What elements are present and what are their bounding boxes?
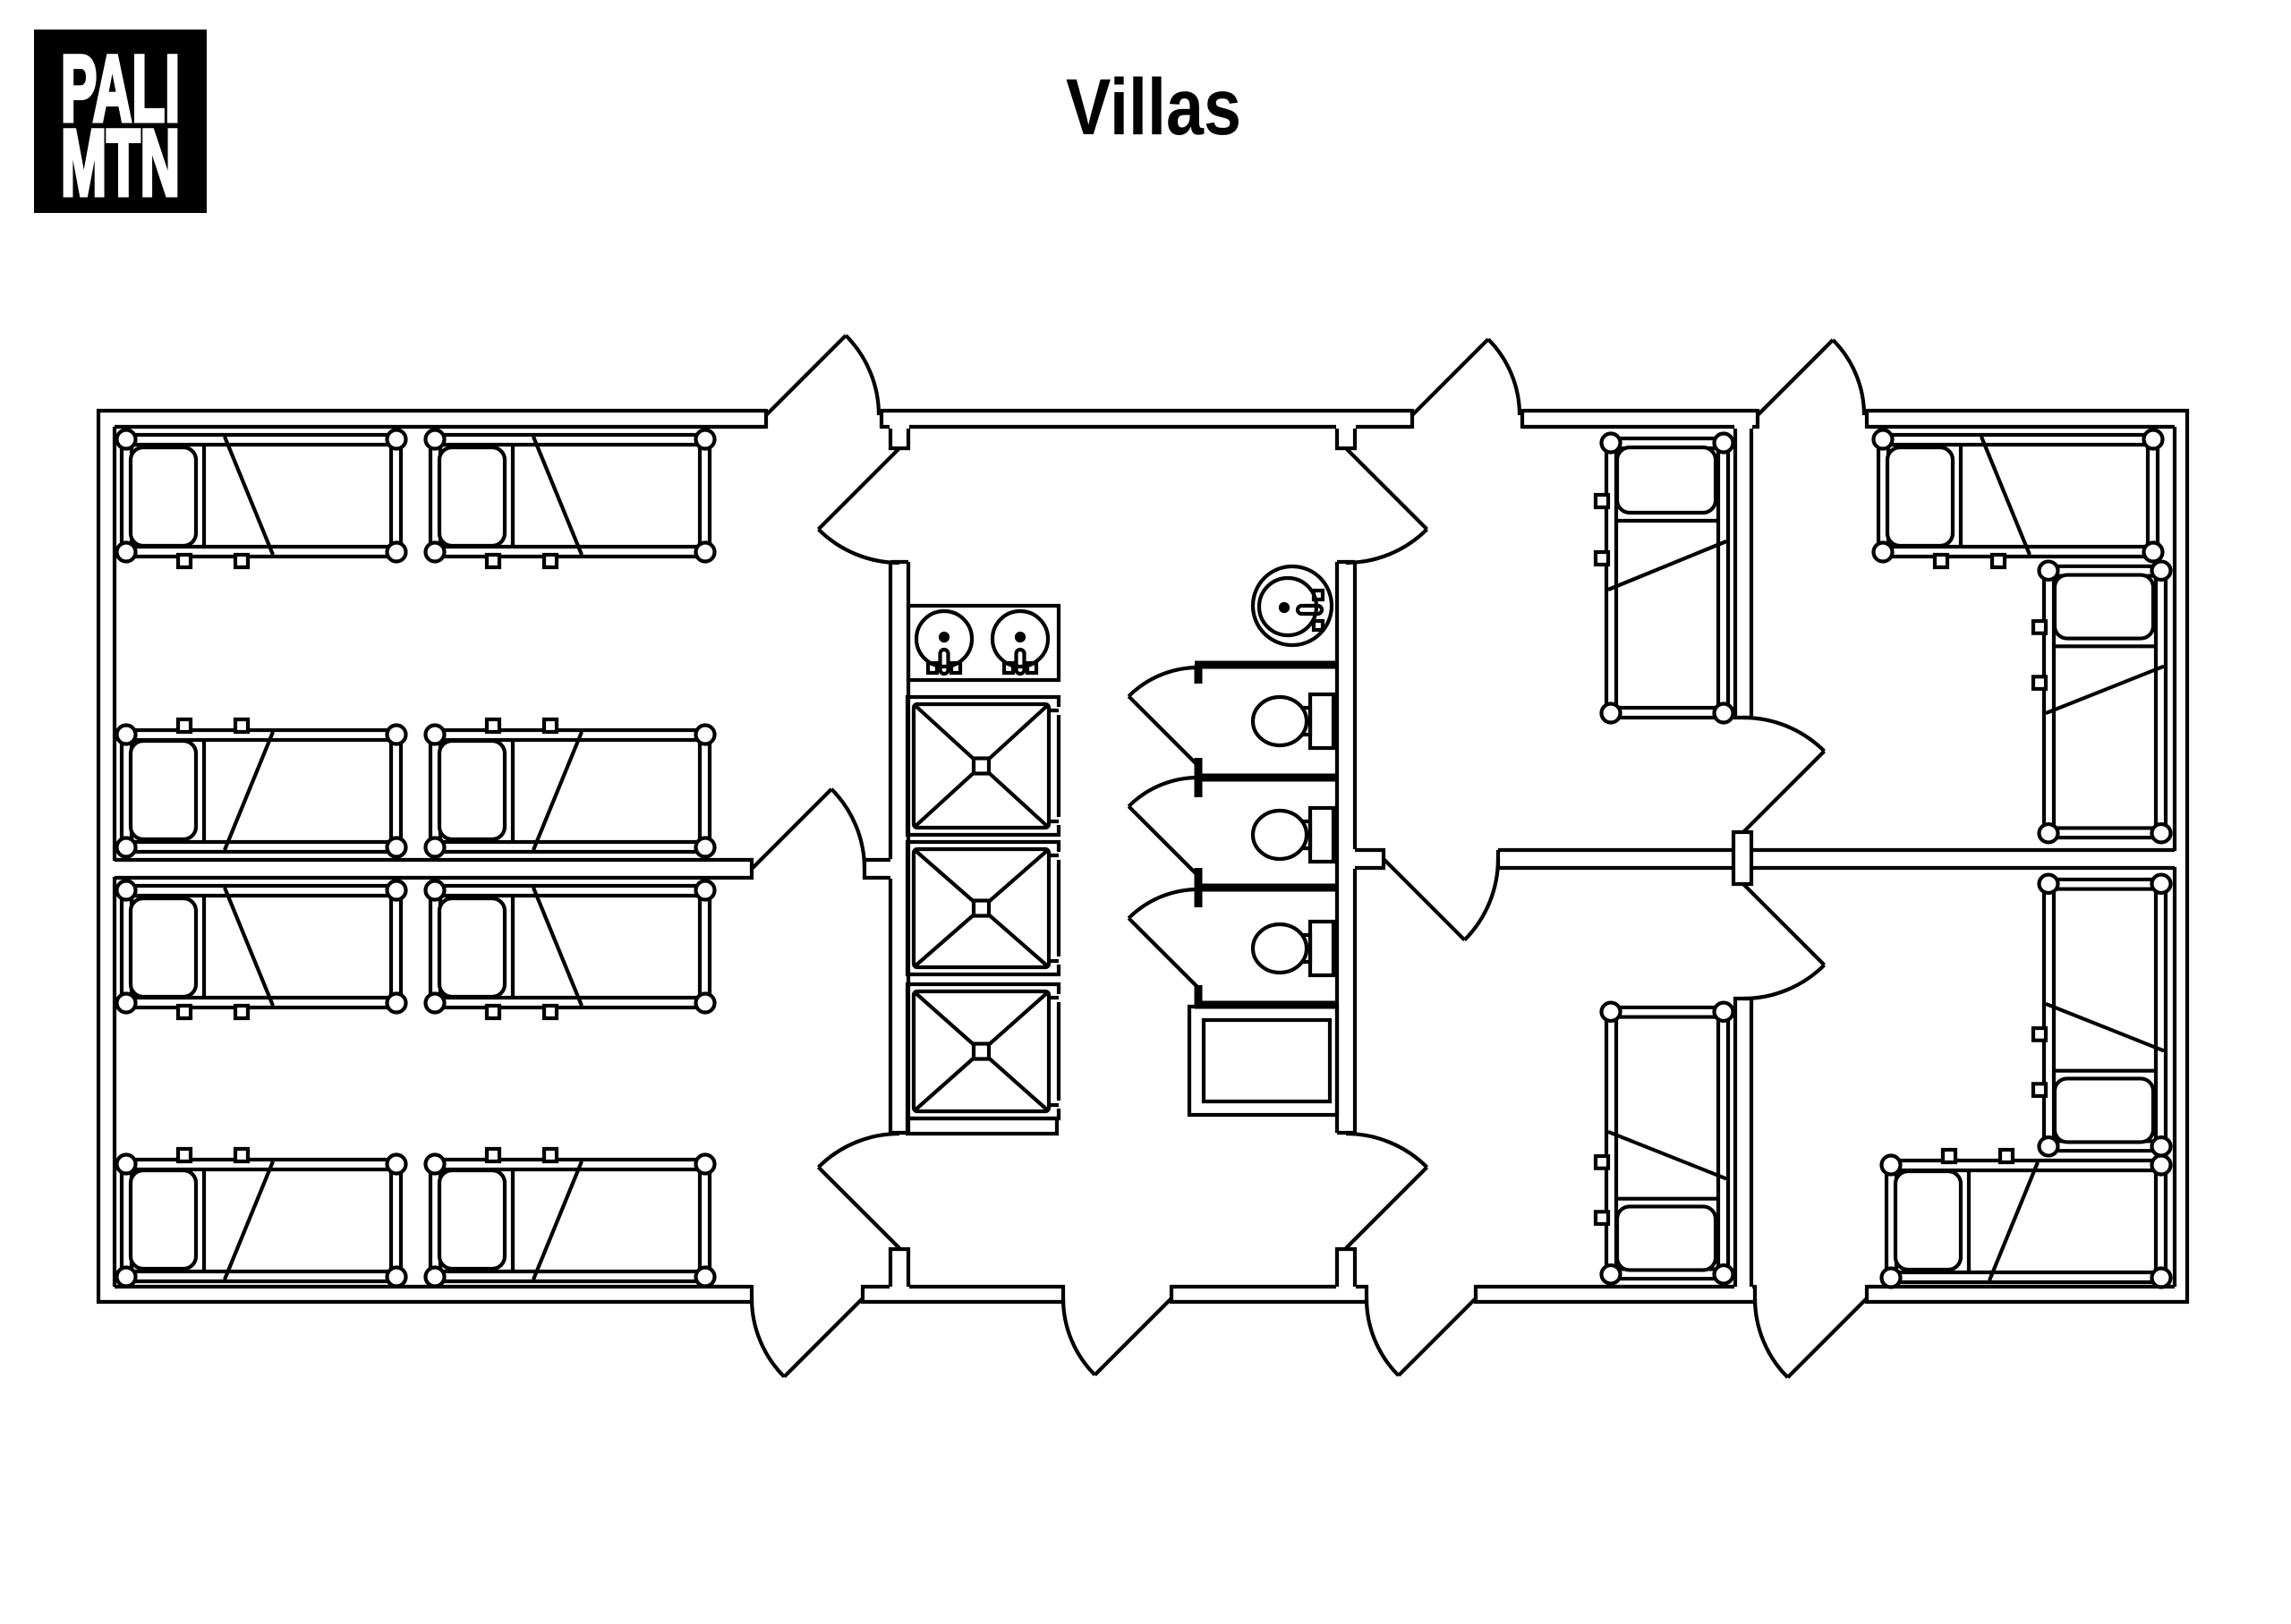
svg-text:Villas: Villas [1066,62,1241,151]
svg-text:MTN: MTN [61,111,180,216]
